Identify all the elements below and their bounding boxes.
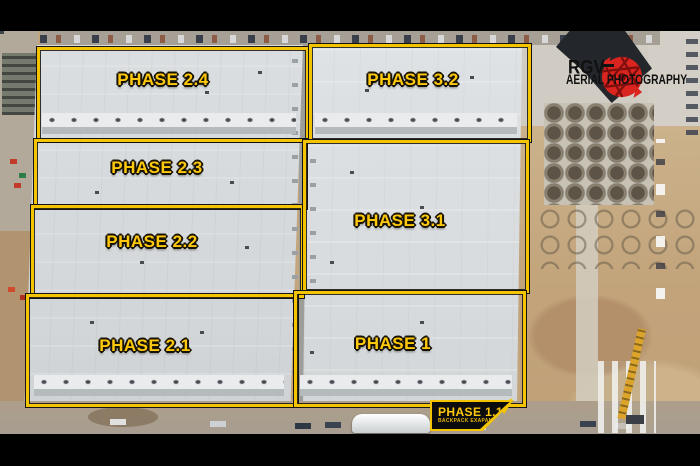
parking-lot-left bbox=[2, 53, 36, 115]
phase-label-1: PHASE 1 bbox=[355, 334, 431, 354]
phase-box-2-4 bbox=[37, 47, 309, 142]
phase-1-1-title: PHASE 1.1 bbox=[438, 406, 503, 418]
letterbox-top bbox=[0, 0, 700, 31]
crane-base bbox=[626, 415, 644, 424]
parked-cars-right bbox=[686, 39, 698, 135]
aerial-photo: PHASE 2.4 PHASE 3.2 PHASE 2.3 PHASE 2.2 … bbox=[0, 31, 700, 434]
phase-label-3-2: PHASE 3.2 bbox=[367, 70, 458, 90]
parked-trucks-right bbox=[656, 139, 665, 299]
letterbox-bottom bbox=[0, 434, 700, 466]
tank-ring-yard bbox=[544, 103, 654, 205]
phase-label-2-4: PHASE 2.4 bbox=[117, 70, 208, 90]
trucks-bottom bbox=[110, 419, 126, 425]
tank-ring-scatter bbox=[538, 207, 700, 269]
phase-label-3-1: PHASE 3.1 bbox=[354, 211, 445, 231]
phase-box-3-2 bbox=[309, 44, 531, 142]
phase-label-2-3: PHASE 2.3 bbox=[111, 158, 202, 178]
roof-hatch-dots bbox=[0, 31, 4, 34]
white-tent-building bbox=[352, 414, 430, 433]
phase-label-2-1: PHASE 2.1 bbox=[99, 336, 190, 356]
equipment-dots bbox=[10, 159, 17, 164]
phase-label-2-2: PHASE 2.2 bbox=[106, 232, 197, 252]
screenshot-stage: PHASE 2.4 PHASE 3.2 PHASE 2.3 PHASE 2.2 … bbox=[0, 0, 700, 466]
watermark-tagline: AERIAL PHOTOGRAPHY bbox=[566, 72, 687, 87]
